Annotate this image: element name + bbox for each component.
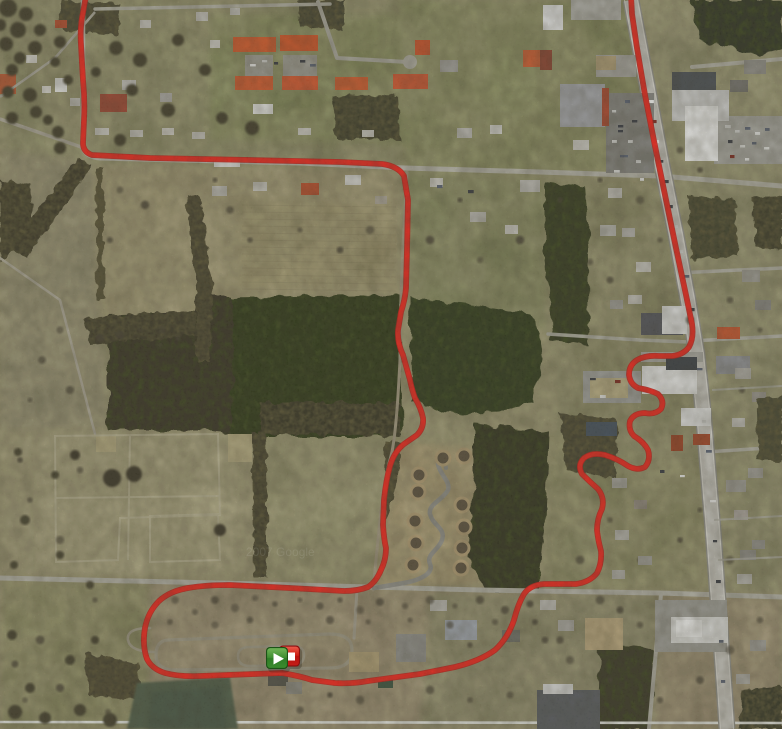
svg-text:2007 Google: 2007 Google (246, 545, 315, 559)
